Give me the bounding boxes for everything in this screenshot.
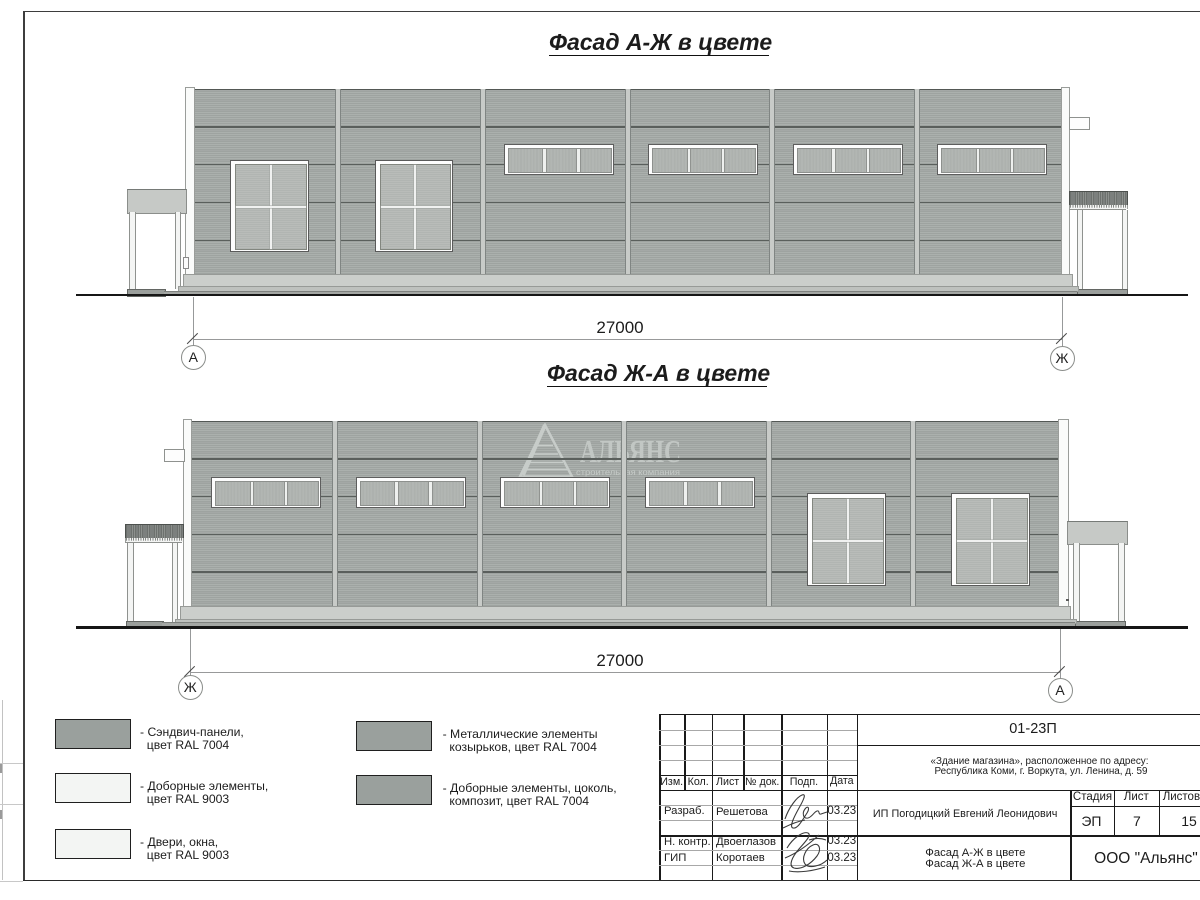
svg-text:строительная компания: строительная компания <box>576 467 680 477</box>
svg-text:АЛЬЯНС: АЛЬЯНС <box>580 433 681 469</box>
